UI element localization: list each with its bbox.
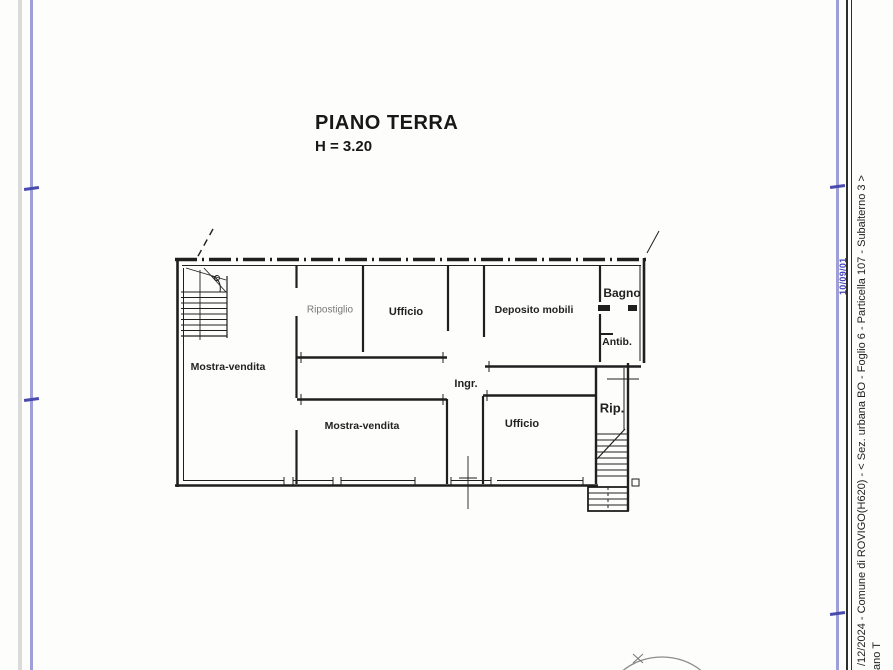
room-label-deposito-mobili: Deposito mobili	[495, 304, 574, 316]
room-label-ufficio-bottom: Ufficio	[505, 418, 539, 430]
room-label-mostra-vendita-bottom: Mostra-vendita	[325, 420, 400, 432]
floor-plan-drawing	[0, 0, 893, 670]
room-label-ufficio-top: Ufficio	[389, 306, 423, 318]
stamp-arc	[605, 654, 719, 670]
staircase-bottom-right	[588, 429, 628, 511]
scanned-cadastral-floorplan-page: { "title": { "floor": "PIANO TERRA", "he…	[0, 0, 893, 670]
room-label-bagno: Bagno	[603, 286, 640, 300]
room-label-ingresso: Ingr.	[454, 378, 477, 390]
room-label-ripostiglio: Ripostiglio	[307, 305, 353, 316]
room-label-antibagno: Antib.	[602, 336, 632, 348]
room-label-mostra-vendita-left: Mostra-vendita	[191, 361, 266, 373]
staircase-top-left	[181, 268, 227, 340]
room-label-rip: Rip.	[600, 401, 625, 416]
